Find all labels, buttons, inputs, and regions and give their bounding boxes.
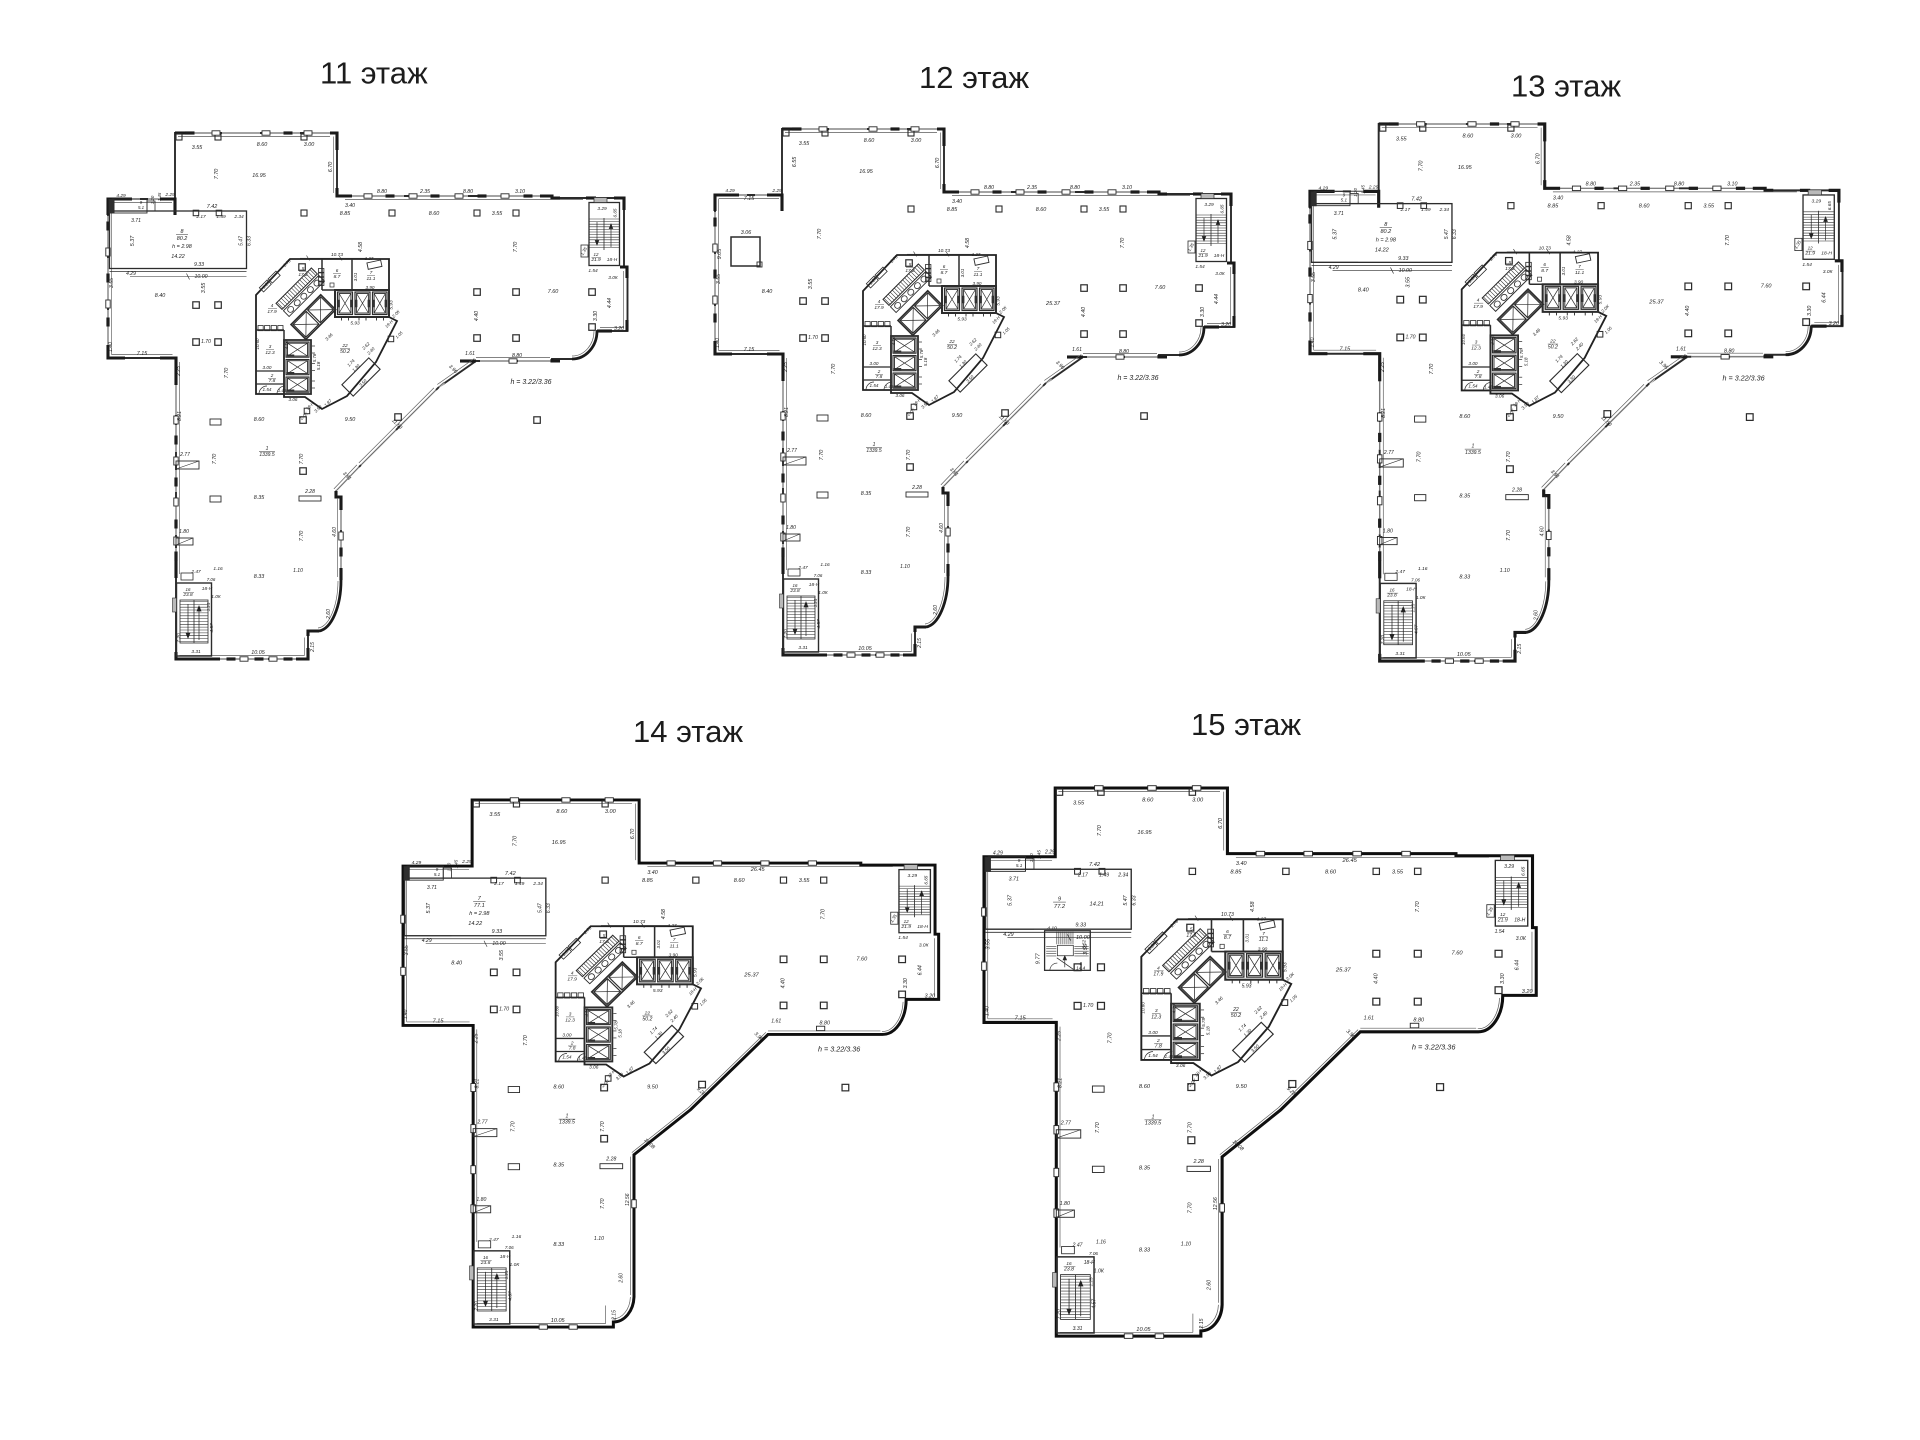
svg-text:1.16: 1.16 [512,1234,522,1240]
svg-text:18-Н: 18-Н [917,924,928,930]
svg-text:3.0К: 3.0К [919,942,930,948]
svg-text:8.33: 8.33 [1139,1248,1151,1254]
svg-text:h = 2.98: h = 2.98 [1376,237,1397,243]
svg-text:7.42: 7.42 [1411,197,1422,203]
svg-text:6: 6 [943,264,946,269]
svg-text:4.40: 4.40 [474,311,480,321]
svg-text:8.21: 8.21 [1381,408,1387,418]
svg-text:2.60: 2.60 [1206,1280,1212,1291]
svg-text:9.05: 9.05 [717,248,723,259]
svg-text:7.06: 7.06 [505,1245,514,1250]
svg-text:9.50: 9.50 [952,413,963,419]
svg-text:12.56: 12.56 [1213,1197,1219,1210]
svg-text:4: 4 [878,299,881,304]
svg-text:1.20: 1.20 [150,195,155,204]
svg-text:10.00: 10.00 [492,941,505,947]
svg-text:7.70: 7.70 [299,531,305,542]
svg-text:1.80: 1.80 [1383,528,1393,534]
svg-text:8.80: 8.80 [1674,181,1684,187]
svg-text:8.80: 8.80 [984,185,994,191]
svg-text:9.50: 9.50 [1236,1084,1248,1090]
svg-text:6.65: 6.65 [1220,204,1225,213]
svg-text:1.27: 1.27 [668,923,677,928]
svg-text:8.60: 8.60 [254,417,265,423]
svg-text:8.60: 8.60 [1325,869,1337,875]
svg-text:4.58: 4.58 [965,238,971,248]
svg-text:18-Н: 18-Н [809,582,820,588]
svg-text:4.20: 4.20 [891,336,896,345]
svg-text:2.29: 2.29 [461,859,472,865]
svg-text:6.33: 6.33 [546,903,552,913]
svg-text:7.15: 7.15 [1339,347,1351,353]
svg-text:2.77: 2.77 [1383,450,1394,456]
svg-text:3.01: 3.01 [353,272,358,281]
svg-text:9.50: 9.50 [1553,414,1565,420]
svg-text:4.29: 4.29 [116,193,126,199]
svg-text:4.57: 4.57 [1092,1299,1098,1309]
svg-text:8.33: 8.33 [861,570,872,576]
svg-text:2.17: 2.17 [493,881,504,887]
svg-text:1.54: 1.54 [263,387,272,392]
svg-text:26.45: 26.45 [1341,858,1357,864]
svg-text:9.33: 9.33 [1398,256,1408,262]
svg-text:4.57: 4.57 [816,619,822,629]
svg-text:2.15: 2.15 [917,638,923,649]
svg-text:2.34: 2.34 [1117,873,1128,879]
svg-text:10.60: 10.60 [1461,333,1466,345]
svg-text:7.15: 7.15 [744,347,755,353]
svg-text:3: 3 [1475,340,1478,345]
svg-text:11 этаж: 11 этаж [320,56,428,91]
svg-text:5.18: 5.18 [923,357,928,366]
svg-text:h = 3.22/3.36: h = 3.22/3.36 [1723,374,1765,382]
svg-text:1.70: 1.70 [499,1006,509,1012]
svg-text:6.44: 6.44 [1822,292,1828,302]
svg-text:12: 12 [594,252,599,257]
svg-text:23.8: 23.8 [480,1260,491,1266]
svg-text:3.55: 3.55 [192,145,203,151]
svg-text:3.00: 3.00 [1192,798,1204,804]
svg-text:10.73: 10.73 [331,252,343,258]
svg-text:8.60: 8.60 [1462,133,1474,139]
svg-text:2.47: 2.47 [797,565,808,571]
svg-text:4.57: 4.57 [507,1291,513,1301]
svg-text:14.22: 14.22 [1375,248,1389,254]
svg-text:7.70: 7.70 [1506,529,1512,541]
svg-text:1.45: 1.45 [157,192,162,201]
svg-text:2.25: 2.25 [1057,1031,1063,1042]
svg-text:5.93: 5.93 [692,967,698,977]
svg-text:7.06: 7.06 [207,577,216,582]
svg-text:8.35: 8.35 [861,491,872,497]
svg-text:21.9: 21.9 [1197,253,1208,259]
svg-text:8.7: 8.7 [941,270,948,276]
svg-text:14 этаж: 14 этаж [633,714,743,749]
svg-text:7.60: 7.60 [1761,283,1773,289]
svg-text:14.21: 14.21 [1090,902,1104,908]
svg-text:21.9: 21.9 [900,924,911,930]
svg-text:1.80: 1.80 [1060,1201,1070,1207]
svg-text:6: 6 [1226,929,1229,935]
svg-text:3.00: 3.00 [911,138,922,144]
svg-text:3.20: 3.20 [1829,321,1839,327]
svg-text:3.00: 3.00 [1468,361,1478,366]
svg-text:5.47: 5.47 [239,236,245,246]
svg-text:4.60: 4.60 [332,527,338,537]
svg-text:2.25: 2.25 [783,362,789,373]
svg-text:2.15: 2.15 [310,642,316,653]
svg-text:4.20: 4.20 [1490,336,1495,345]
svg-text:3.55: 3.55 [1073,801,1085,807]
svg-text:1.80: 1.80 [179,529,189,535]
svg-text:7.70: 7.70 [600,1121,606,1132]
svg-text:1.20: 1.20 [1029,853,1034,862]
svg-text:10.60: 10.60 [862,334,867,346]
svg-text:3.06: 3.06 [289,397,298,402]
svg-text:10.05: 10.05 [251,650,265,656]
svg-text:3.40: 3.40 [1553,196,1563,202]
svg-text:18-Н: 18-Н [1214,253,1225,259]
svg-text:18-Н: 18-Н [1821,251,1832,257]
svg-text:6: 6 [336,268,339,273]
svg-text:3.55: 3.55 [1099,207,1110,213]
svg-text:3.30: 3.30 [593,311,599,321]
svg-text:8.7: 8.7 [1541,268,1548,274]
svg-text:16.95: 16.95 [1137,830,1152,836]
svg-text:7.70: 7.70 [214,169,220,180]
svg-text:9.50: 9.50 [345,417,356,423]
svg-text:1.70: 1.70 [1083,1003,1093,1009]
svg-text:7.70: 7.70 [513,242,519,253]
svg-text:1.20: 1.20 [446,862,451,871]
svg-text:5.93: 5.93 [653,988,663,994]
svg-text:1.0К: 1.0К [211,594,222,600]
svg-text:7.70: 7.70 [1120,238,1126,249]
svg-text:17.9: 17.9 [567,976,577,982]
svg-text:2.15: 2.15 [611,1310,617,1321]
svg-text:1.10: 1.10 [594,1236,604,1242]
svg-text:h = 3.22/3.36: h = 3.22/3.36 [818,1046,860,1054]
svg-text:12: 12 [904,919,910,924]
svg-text:5.78: 5.78 [312,353,317,362]
svg-text:8.21: 8.21 [474,1078,480,1088]
svg-text:1.45: 1.45 [1036,850,1041,859]
svg-text:1.49: 1.49 [1421,207,1431,213]
svg-text:10.05: 10.05 [1136,1327,1151,1333]
svg-text:7.8: 7.8 [1155,1043,1162,1049]
svg-text:8.40: 8.40 [1358,287,1370,293]
svg-text:6.70: 6.70 [935,158,941,169]
svg-text:4.44: 4.44 [607,298,613,308]
svg-text:8.35: 8.35 [1459,494,1471,500]
svg-text:5: 5 [1190,927,1193,933]
svg-text:7.70: 7.70 [906,450,912,461]
svg-text:h = 3.22/3.36: h = 3.22/3.36 [1117,375,1158,382]
svg-text:1.61: 1.61 [465,351,475,357]
svg-text:5.18: 5.18 [316,361,321,370]
svg-text:7.20: 7.20 [1057,1309,1063,1319]
svg-text:4.20: 4.20 [585,1008,590,1017]
svg-text:9.33: 9.33 [492,929,502,935]
svg-text:77.2: 77.2 [1054,904,1066,910]
svg-text:1339.5: 1339.5 [1145,1121,1161,1127]
svg-text:1.16: 1.16 [1418,566,1428,572]
svg-text:3.55: 3.55 [1396,136,1408,142]
svg-text:5.37: 5.37 [130,235,136,246]
svg-text:8.60: 8.60 [1142,798,1154,804]
svg-text:7.15: 7.15 [744,196,755,202]
svg-text:2: 2 [570,1041,574,1046]
svg-text:1.49: 1.49 [216,214,226,220]
svg-text:16.95: 16.95 [552,840,567,846]
svg-text:22: 22 [1549,338,1556,344]
svg-text:12.3: 12.3 [1471,346,1481,352]
svg-text:3.20: 3.20 [925,993,935,999]
svg-text:10.05: 10.05 [858,646,872,652]
svg-text:h = 2.98: h = 2.98 [469,911,490,917]
svg-text:12: 12 [1201,248,1206,253]
svg-text:8.85: 8.85 [642,878,654,884]
svg-text:7.15: 7.15 [137,351,148,357]
svg-text:5.93: 5.93 [350,321,360,327]
svg-text:7.70: 7.70 [1415,900,1421,912]
svg-text:12 этаж: 12 этаж [919,60,1029,95]
svg-text:8.60: 8.60 [734,878,745,884]
svg-text:3.30: 3.30 [1807,306,1813,316]
svg-text:10.00: 10.00 [1399,268,1412,274]
svg-text:7.70: 7.70 [831,364,837,375]
svg-text:3.55: 3.55 [799,141,810,147]
svg-text:18-Н: 18-Н [1084,1260,1095,1266]
svg-text:5.78: 5.78 [919,349,924,358]
svg-text:1.54: 1.54 [898,935,908,941]
svg-text:5: 5 [302,266,305,271]
svg-text:6.33: 6.33 [247,236,253,246]
svg-text:2.15: 2.15 [1517,644,1523,655]
svg-text:9.33: 9.33 [1075,923,1086,929]
svg-text:5.1: 5.1 [1016,863,1023,868]
svg-text:7.70: 7.70 [1187,1202,1193,1214]
svg-text:4.29: 4.29 [422,938,432,944]
svg-text:3.55: 3.55 [1405,276,1411,288]
svg-text:8.35: 8.35 [553,1163,565,1169]
svg-text:7.70: 7.70 [1725,234,1731,246]
svg-text:1.61: 1.61 [1676,347,1686,353]
svg-text:2.35: 2.35 [1026,185,1037,191]
svg-text:7.70: 7.70 [817,229,823,240]
svg-text:7.60: 7.60 [856,956,867,962]
svg-text:6.70: 6.70 [630,829,636,840]
svg-text:8.21: 8.21 [1058,1078,1064,1088]
svg-text:3.01: 3.01 [960,268,965,277]
svg-text:50.2: 50.2 [947,345,957,351]
svg-text:1.0К: 1.0К [818,590,829,596]
svg-text:5: 5 [1509,260,1512,265]
svg-text:1.10: 1.10 [293,568,303,574]
svg-text:4: 4 [571,970,574,975]
svg-text:77.1: 77.1 [474,903,485,909]
svg-text:8.7: 8.7 [1224,935,1231,941]
svg-text:6.70: 6.70 [328,162,334,173]
svg-text:2.60: 2.60 [1534,610,1540,621]
svg-text:2.77: 2.77 [179,452,190,458]
svg-text:3.71: 3.71 [1334,211,1344,217]
svg-text:12: 12 [1808,246,1814,251]
svg-text:7.70: 7.70 [1506,451,1512,463]
svg-text:3.06: 3.06 [1495,394,1505,399]
svg-text:1.54: 1.54 [562,1055,572,1060]
svg-text:6.65: 6.65 [613,208,618,217]
svg-text:8.60: 8.60 [861,413,872,419]
svg-text:18-Н: 18-Н [500,1254,511,1260]
svg-text:3.55: 3.55 [489,812,501,818]
svg-text:4.29: 4.29 [1319,185,1329,191]
svg-text:1.0К: 1.0К [1094,1269,1105,1275]
svg-text:1.61: 1.61 [1364,1015,1374,1021]
svg-text:5.37: 5.37 [426,902,432,913]
svg-text:17.2: 17.2 [599,939,609,945]
svg-text:3.29: 3.29 [1812,199,1822,205]
svg-text:6.65: 6.65 [1827,201,1832,210]
svg-text:11.1: 11.1 [1575,270,1584,276]
svg-text:3.31: 3.31 [798,645,808,651]
svg-text:6.70: 6.70 [1218,817,1224,829]
svg-text:7.70: 7.70 [523,1035,529,1046]
svg-text:3.29: 3.29 [1204,202,1214,208]
svg-text:4.57: 4.57 [209,623,215,633]
svg-text:23.8: 23.8 [182,592,193,598]
svg-text:16: 16 [483,1255,489,1260]
svg-text:3.90: 3.90 [1258,947,1268,953]
svg-text:3.10: 3.10 [1727,181,1737,187]
svg-text:5.93: 5.93 [1558,316,1568,322]
svg-text:3.01: 3.01 [656,939,661,948]
svg-text:1.16: 1.16 [1096,1239,1106,1245]
svg-text:8.85: 8.85 [947,207,958,213]
svg-text:10.05: 10.05 [551,1318,566,1324]
svg-text:8.7: 8.7 [334,274,341,280]
svg-text:7: 7 [1578,264,1581,269]
svg-text:4.29: 4.29 [993,851,1003,857]
svg-text:4.29: 4.29 [1003,932,1013,938]
svg-text:9.77: 9.77 [1035,953,1041,965]
svg-text:8.80: 8.80 [377,189,387,195]
svg-text:17.2: 17.2 [1186,933,1196,939]
svg-text:3.10: 3.10 [1122,185,1132,191]
svg-text:3.00: 3.00 [870,361,879,366]
svg-text:1339.5: 1339.5 [866,448,882,454]
svg-text:11.1: 11.1 [974,272,983,278]
svg-text:8.60: 8.60 [864,138,875,144]
svg-text:10.05: 10.05 [1457,652,1472,658]
svg-text:7.20: 7.20 [1380,635,1386,645]
svg-text:18-Н: 18-Н [1514,917,1525,923]
svg-text:8.35: 8.35 [1139,1165,1151,1171]
svg-text:1.25: 1.25 [504,1270,509,1279]
svg-text:11.1: 11.1 [670,943,680,949]
svg-text:3.55: 3.55 [109,278,115,288]
svg-text:3.06: 3.06 [896,393,905,398]
svg-text:5.18: 5.18 [1523,357,1528,366]
svg-text:17.9: 17.9 [874,305,884,311]
svg-text:3.00: 3.00 [605,809,616,815]
svg-text:1.10: 1.10 [900,564,910,570]
svg-text:7.20: 7.20 [783,629,789,639]
svg-text:3.90: 3.90 [366,285,375,290]
svg-text:16: 16 [1389,588,1395,593]
svg-text:8.80: 8.80 [820,1020,830,1026]
svg-text:3: 3 [876,340,879,345]
svg-text:8.40: 8.40 [451,960,462,966]
svg-text:5.1: 5.1 [1341,198,1348,203]
svg-text:3.31: 3.31 [489,1317,499,1323]
svg-text:1.27: 1.27 [1257,916,1267,921]
svg-text:1.45: 1.45 [454,859,459,868]
svg-text:26.45: 26.45 [750,867,766,873]
svg-text:7.70: 7.70 [906,527,912,538]
svg-text:3: 3 [269,344,272,349]
svg-text:3: 3 [569,1011,572,1016]
svg-text:9.33: 9.33 [194,262,204,268]
svg-text:17.9: 17.9 [1153,972,1163,978]
svg-text:7.20: 7.20 [176,633,182,643]
svg-text:21.9: 21.9 [590,257,601,263]
svg-text:2.29: 2.29 [1368,184,1379,190]
svg-text:3.55: 3.55 [1703,204,1715,210]
svg-text:4.58: 4.58 [1250,901,1256,912]
svg-text:2.25: 2.25 [176,366,182,377]
svg-text:16.95: 16.95 [859,169,873,175]
svg-text:1.27: 1.27 [365,256,374,261]
svg-text:3.55: 3.55 [492,211,503,217]
svg-text:16: 16 [793,583,798,588]
svg-text:7.8: 7.8 [269,378,276,384]
svg-text:3.90: 3.90 [973,281,982,286]
svg-text:2: 2 [1476,369,1480,374]
svg-text:1.61: 1.61 [771,1018,781,1024]
svg-text:5: 5 [603,933,606,938]
svg-text:1.10: 1.10 [1500,568,1510,574]
svg-text:3.31: 3.31 [1073,1326,1083,1332]
svg-text:3.00: 3.00 [1148,1030,1158,1036]
svg-text:17.2: 17.2 [298,272,308,278]
svg-text:4.58: 4.58 [1566,235,1572,245]
svg-text:7.70: 7.70 [821,909,827,920]
svg-text:4.40: 4.40 [1373,973,1379,984]
svg-text:1.27: 1.27 [972,252,981,257]
svg-text:7.42: 7.42 [207,204,218,210]
svg-text:1.16: 1.16 [820,562,830,568]
svg-text:3.0К: 3.0К [1215,271,1226,277]
svg-text:8.21: 8.21 [177,411,183,421]
svg-text:1.25: 1.25 [1088,1277,1093,1286]
svg-text:8.80: 8.80 [512,353,522,359]
svg-text:7.70: 7.70 [1095,1121,1101,1133]
svg-text:8.80: 8.80 [1070,185,1080,191]
svg-text:50.2: 50.2 [642,1016,652,1022]
svg-text:2.17: 2.17 [195,214,206,220]
svg-text:1.61: 1.61 [1072,347,1082,353]
svg-text:5.37: 5.37 [1333,228,1339,240]
svg-text:4.40: 4.40 [1081,307,1087,317]
svg-text:4.40: 4.40 [780,978,786,988]
svg-text:1.54: 1.54 [588,268,598,274]
svg-text:3.00: 3.00 [562,1032,572,1037]
svg-text:1.40: 1.40 [715,338,721,348]
svg-text:5.18: 5.18 [618,1029,623,1038]
svg-text:7.42: 7.42 [505,871,516,877]
svg-text:2.25: 2.25 [1380,362,1386,373]
